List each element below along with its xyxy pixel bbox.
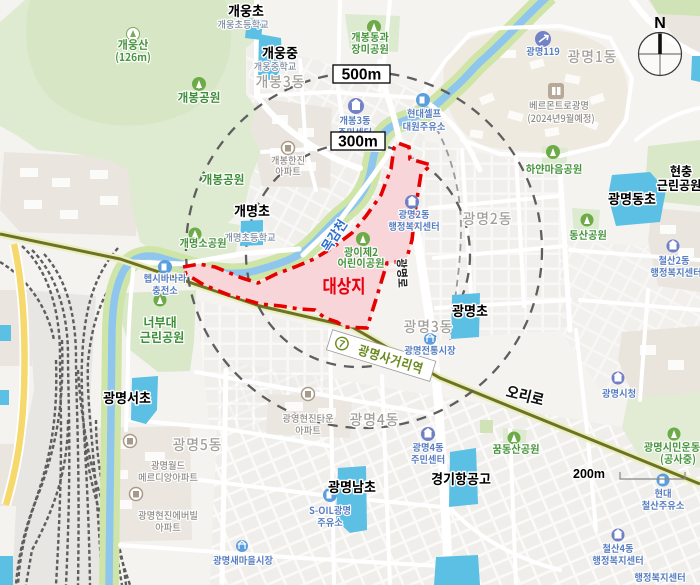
svg-text:300m: 300m (338, 134, 378, 151)
svg-text:500m: 500m (342, 67, 382, 84)
svg-text:N: N (654, 15, 666, 32)
svg-text:200m: 200m (573, 467, 605, 481)
